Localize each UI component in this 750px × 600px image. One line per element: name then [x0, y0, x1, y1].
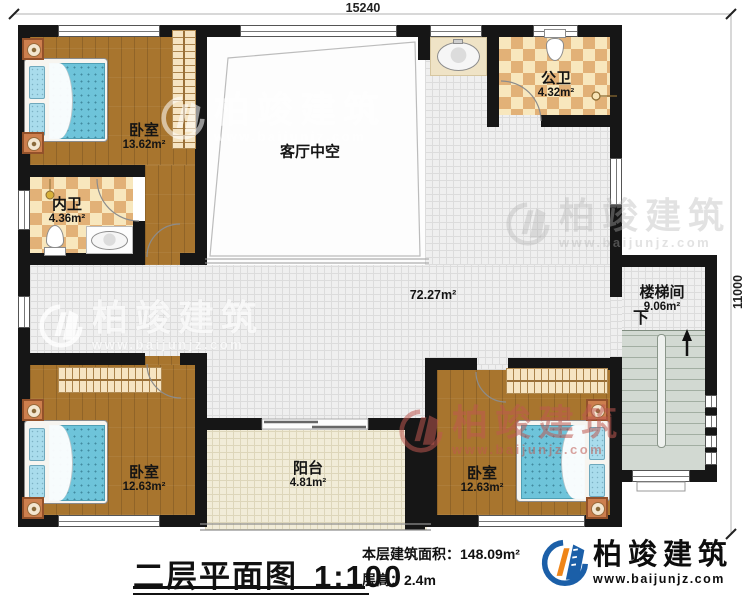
floor-height-row: 层高：2.4m	[362, 573, 520, 588]
window	[610, 158, 622, 205]
nightstand	[22, 399, 44, 421]
wall	[18, 253, 145, 265]
pillow	[589, 464, 605, 497]
door-threshold-bedroom-bl	[145, 356, 180, 365]
window	[240, 25, 397, 37]
wall	[425, 358, 477, 370]
room-label-balcony: 阳台 4.81m²	[290, 460, 326, 490]
pillow	[29, 428, 45, 461]
wall	[610, 357, 622, 527]
wall	[610, 205, 622, 297]
wardrobe-tl	[172, 30, 196, 149]
wall	[705, 428, 717, 435]
wardrobe-bl	[58, 367, 162, 393]
room-label-bedroom-tl: 卧室 13.62m²	[123, 122, 166, 152]
sink-inner-bath	[91, 231, 128, 250]
window	[478, 515, 585, 527]
dimension-tick	[726, 9, 736, 19]
stairwell-doorway	[610, 297, 622, 357]
brand-url: www.baijunjz.com	[593, 573, 733, 586]
floor-height-value: 2.4m	[404, 572, 436, 588]
wall	[610, 25, 622, 158]
brand-logo-icon	[540, 536, 588, 590]
floorplan-canvas: 柏竣建筑www.baijunjz.com 柏竣建筑www.baijunjz.co…	[0, 0, 750, 600]
room-area: 12.63m²	[123, 481, 166, 494]
wall	[405, 418, 425, 530]
nightstand	[22, 497, 44, 519]
stair-landing	[622, 456, 705, 469]
nightstand	[22, 38, 44, 60]
faucet	[453, 39, 463, 44]
room-name: 公卫	[541, 70, 571, 87]
pillow	[29, 66, 45, 99]
toilet-tank	[44, 247, 66, 256]
nightstand	[22, 132, 44, 154]
room-area: 4.36m²	[49, 213, 85, 226]
floor-info: 本层建筑面积：148.09m² 层高：2.4m	[362, 547, 520, 589]
room-name: 客厅中空	[280, 143, 340, 160]
wall	[195, 353, 207, 527]
room-name: 卧室	[129, 122, 159, 139]
room-area: 12.63m²	[461, 482, 504, 495]
wall	[430, 515, 478, 527]
window	[58, 25, 160, 37]
room-area: 9.06m²	[644, 301, 680, 314]
stair-down-label: 下	[633, 310, 649, 328]
room-name: 内卫	[52, 196, 82, 213]
bed-br	[516, 420, 610, 502]
window	[18, 190, 30, 230]
wall	[622, 255, 717, 267]
room-area: 13.62m²	[123, 139, 166, 152]
dimension-tick	[9, 9, 19, 19]
room-label-bedroom-bl: 卧室 12.63m²	[123, 464, 166, 494]
floor-area-value: 148.09m²	[460, 546, 520, 562]
brand-logo-block: 柏竣建筑 www.baijunjz.com	[540, 536, 733, 590]
wall	[195, 418, 262, 430]
dimension-top: 15240	[346, 1, 381, 15]
stair-handrail	[657, 334, 666, 448]
room-name: 楼梯间	[639, 284, 684, 301]
window	[58, 515, 160, 527]
window	[18, 296, 30, 328]
bed-tl	[24, 58, 108, 142]
door-threshold-bedroom-tl	[145, 253, 180, 265]
floor-bedroom-tl-entry	[145, 165, 195, 253]
floor-corridor-main	[30, 265, 610, 365]
room-name: 阳台	[293, 460, 323, 477]
nightstand	[586, 497, 608, 519]
brand-name: 柏竣建筑	[593, 541, 733, 570]
title-underline	[133, 586, 365, 589]
room-name: 卧室	[467, 465, 497, 482]
room-label-corridor: 72.27m²	[410, 288, 457, 302]
toilet-tank	[544, 29, 566, 38]
window	[705, 435, 717, 448]
room-label-bedroom-br: 卧室 12.63m²	[461, 465, 504, 495]
window	[705, 395, 717, 408]
room-area: 4.32m²	[538, 87, 574, 100]
room-name: 卧室	[129, 464, 159, 481]
wall	[180, 253, 207, 265]
wall	[690, 470, 717, 482]
dimension-right: 11000	[731, 275, 745, 309]
room-label-inner-bath: 内卫 4.36m²	[49, 196, 85, 226]
wall	[18, 353, 145, 365]
drawing-title: 二层平面图	[133, 551, 298, 596]
wall	[541, 115, 622, 127]
nightstand	[586, 399, 608, 421]
wall	[18, 165, 145, 177]
wardrobe-br	[506, 368, 608, 394]
title-underline	[133, 593, 369, 595]
sink-corridor	[437, 42, 480, 71]
window	[705, 415, 717, 428]
window	[705, 452, 717, 465]
window-sill	[637, 482, 685, 491]
pillow	[29, 465, 45, 498]
blanket	[561, 425, 585, 499]
window	[430, 25, 482, 37]
wall	[418, 25, 430, 60]
window	[632, 470, 690, 482]
pillow	[589, 427, 605, 460]
wall	[487, 115, 499, 127]
floor-area-row: 本层建筑面积：148.09m²	[362, 547, 520, 562]
wall	[622, 470, 632, 482]
wall	[487, 25, 499, 127]
wall	[705, 408, 717, 415]
wall	[425, 358, 437, 527]
room-label-public-bath: 公卫 4.32m²	[538, 70, 574, 100]
floor-area-label: 本层建筑面积：	[362, 546, 460, 562]
wall	[705, 257, 717, 395]
wall	[133, 165, 145, 177]
room-label-living-void: 客厅中空	[280, 143, 340, 160]
room-area: 72.27m²	[410, 288, 457, 302]
floor-height-label: 层高：	[362, 572, 404, 588]
bed-bl	[24, 420, 108, 504]
room-area: 4.81m²	[290, 477, 326, 490]
wall	[195, 37, 207, 265]
